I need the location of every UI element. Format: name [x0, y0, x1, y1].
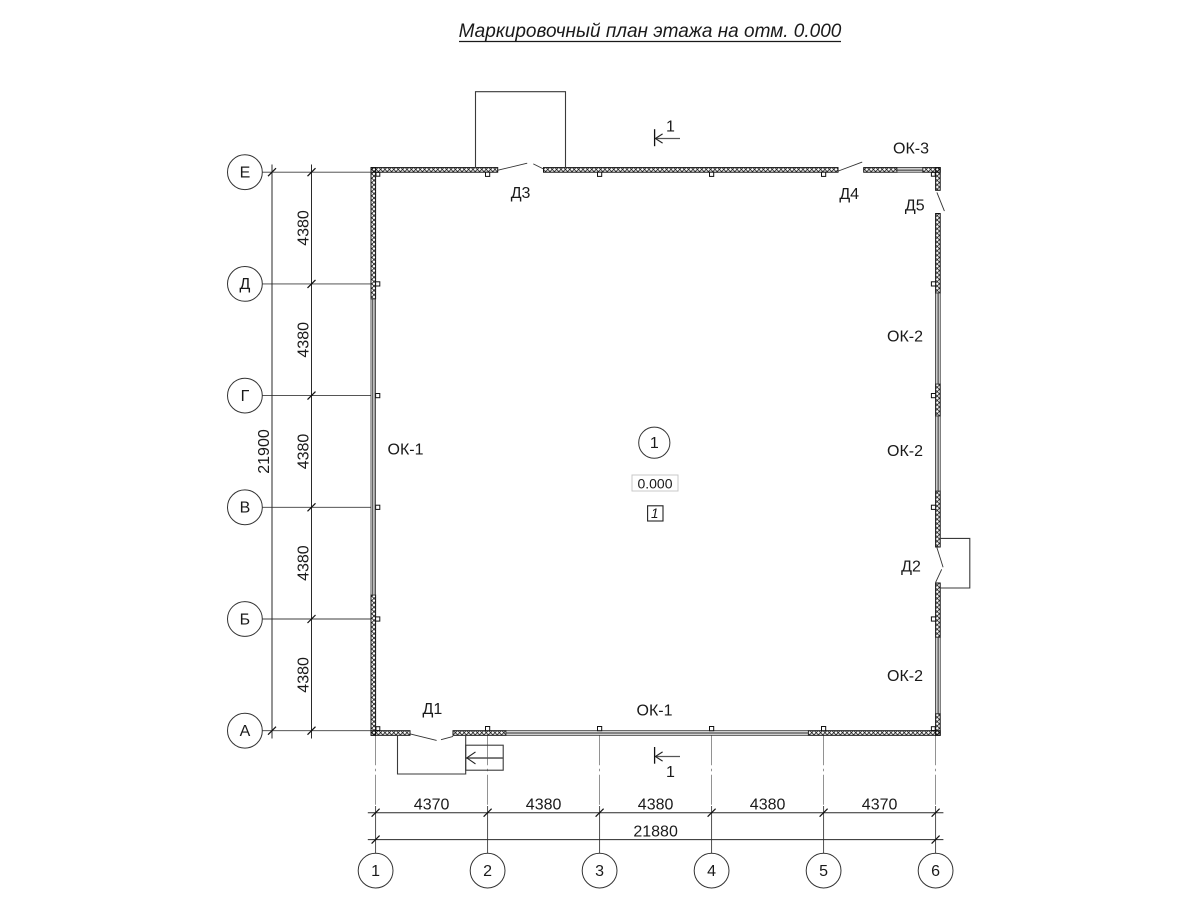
svg-text:Маркировочный план этажа на от: Маркировочный план этажа на отм. 0.000	[459, 21, 842, 42]
svg-text:ОК-2: ОК-2	[887, 668, 923, 685]
svg-text:6: 6	[931, 863, 940, 880]
svg-text:2: 2	[483, 863, 492, 880]
svg-text:ОК-1: ОК-1	[637, 703, 673, 720]
svg-text:5: 5	[819, 863, 828, 880]
svg-text:4370: 4370	[414, 797, 450, 814]
svg-text:4380: 4380	[750, 797, 786, 814]
svg-text:4370: 4370	[862, 797, 898, 814]
svg-text:Д3: Д3	[511, 185, 531, 202]
svg-text:4380: 4380	[295, 657, 312, 693]
svg-text:Г: Г	[241, 388, 250, 405]
svg-text:Д1: Д1	[423, 701, 443, 718]
svg-text:3: 3	[595, 863, 604, 880]
svg-text:1: 1	[651, 506, 659, 521]
svg-text:Б: Б	[240, 611, 251, 628]
svg-text:21900: 21900	[256, 429, 273, 474]
svg-text:4380: 4380	[526, 797, 562, 814]
svg-text:1: 1	[666, 119, 675, 136]
svg-text:1: 1	[666, 764, 675, 781]
svg-text:Д5: Д5	[905, 198, 925, 215]
svg-text:4: 4	[707, 863, 716, 880]
svg-text:ОК-2: ОК-2	[887, 329, 923, 346]
svg-text:Д: Д	[239, 276, 250, 293]
svg-text:Д2: Д2	[901, 559, 921, 576]
svg-text:ОК-2: ОК-2	[887, 443, 923, 460]
svg-text:4380: 4380	[295, 434, 312, 470]
svg-text:А: А	[240, 723, 251, 740]
svg-text:4380: 4380	[295, 210, 312, 246]
svg-text:1: 1	[650, 435, 659, 452]
svg-text:4380: 4380	[295, 322, 312, 358]
svg-text:4380: 4380	[295, 545, 312, 581]
svg-text:4380: 4380	[638, 797, 674, 814]
svg-text:1: 1	[371, 863, 380, 880]
svg-text:0.000: 0.000	[637, 476, 672, 492]
svg-text:Е: Е	[240, 165, 251, 182]
svg-text:Д4: Д4	[839, 186, 859, 203]
svg-text:21880: 21880	[633, 824, 678, 841]
svg-text:ОК-3: ОК-3	[893, 141, 929, 158]
svg-text:В: В	[240, 500, 251, 517]
svg-text:ОК-1: ОК-1	[388, 441, 424, 458]
